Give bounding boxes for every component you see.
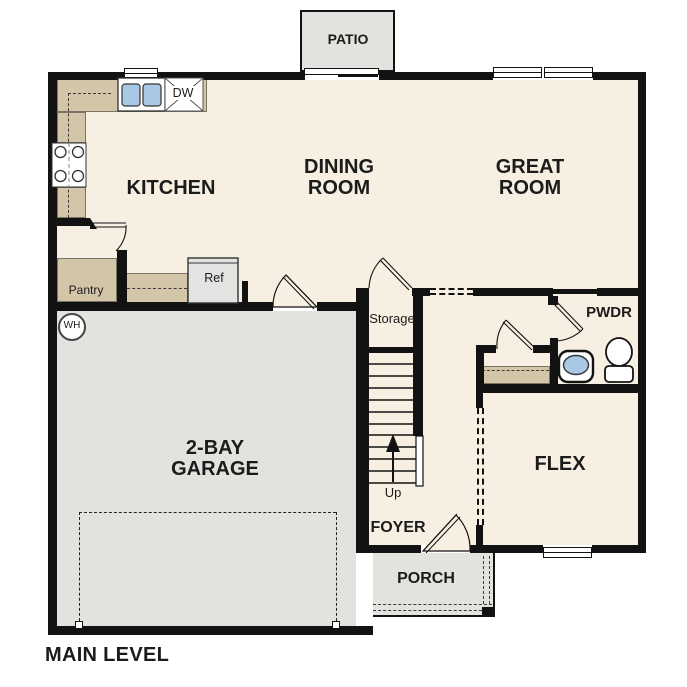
garage-entry-door — [273, 275, 317, 309]
plan-symbols-layer — [0, 0, 687, 687]
foyer-label: FOYER — [363, 520, 433, 537]
stair-handrail — [416, 436, 423, 486]
powder-sink — [559, 351, 593, 382]
plan-title: MAIN LEVEL — [45, 645, 265, 666]
floor-plan: PATIO KITCHEN DINING ROOM GREAT ROOM Pan… — [0, 0, 687, 687]
storage-door — [369, 258, 412, 290]
pantry-door — [93, 223, 126, 251]
kitchen-label: KITCHEN — [111, 178, 231, 199]
refrigerator-label: Ref — [194, 272, 234, 285]
water-heater-label: WH — [58, 321, 86, 332]
up-arrow-icon — [386, 434, 400, 452]
closet-door — [497, 320, 535, 350]
dining-room-label: DINING ROOM — [299, 157, 379, 199]
up-label: Up — [378, 486, 408, 500]
wall-miter-caps — [90, 218, 126, 258]
garage-label: 2-BAY GARAGE — [165, 438, 265, 480]
porch-label: PORCH — [391, 571, 461, 588]
toilet — [605, 338, 633, 382]
staircase — [366, 352, 423, 486]
powder-label: PWDR — [578, 305, 640, 321]
flex-label: FLEX — [525, 454, 595, 475]
kitchen-sink — [118, 78, 165, 111]
dishwasher-label-text: DW — [172, 86, 195, 100]
pantry-label: Pantry — [55, 284, 117, 297]
stove-cooktop — [52, 143, 86, 187]
patio-label: PATIO — [303, 32, 393, 47]
great-room-label: GREAT ROOM — [490, 157, 570, 199]
storage-label: Storage — [364, 312, 420, 326]
dishwasher-label: DW — [168, 87, 198, 100]
